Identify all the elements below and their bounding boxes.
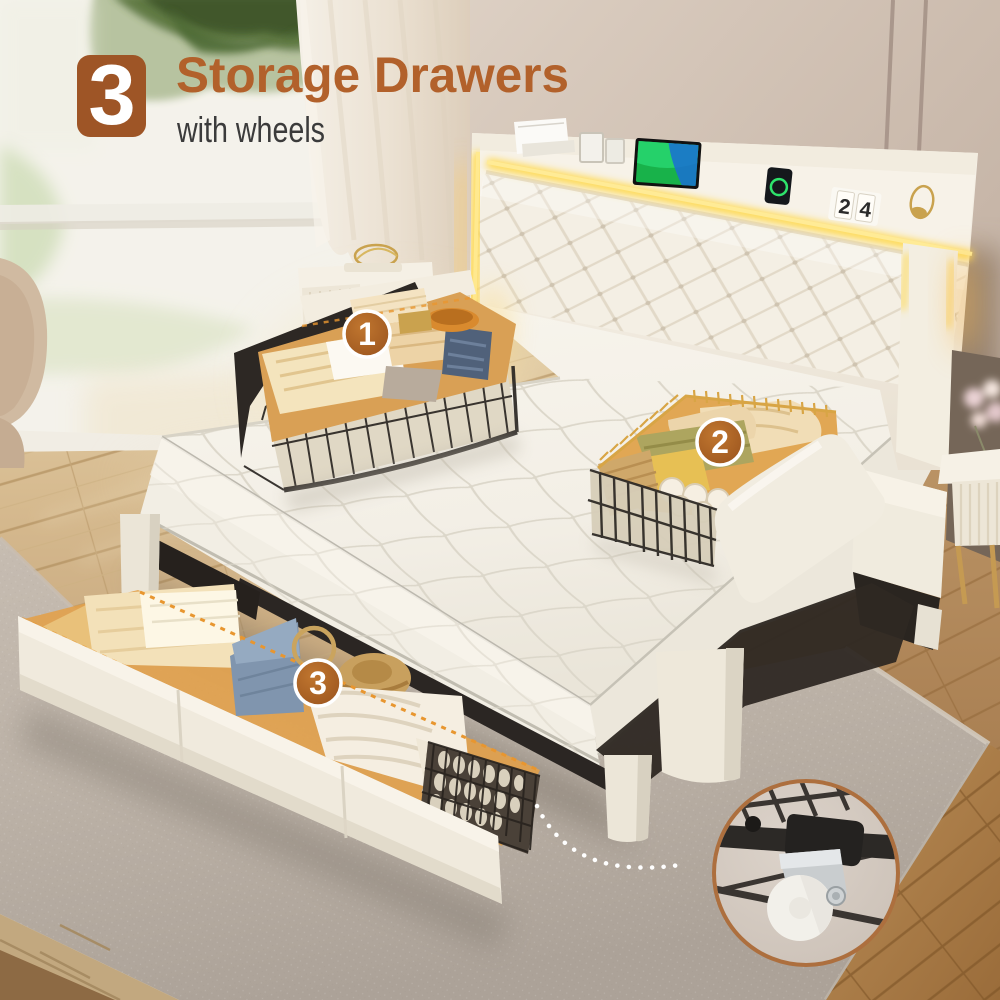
svg-text:2: 2 — [711, 424, 729, 460]
svg-text:1: 1 — [358, 316, 376, 352]
svg-text:3: 3 — [309, 665, 327, 701]
svg-text:Storage Drawers: Storage Drawers — [176, 47, 569, 103]
svg-text:3: 3 — [88, 48, 135, 143]
svg-text:with wheels: with wheels — [176, 109, 325, 150]
